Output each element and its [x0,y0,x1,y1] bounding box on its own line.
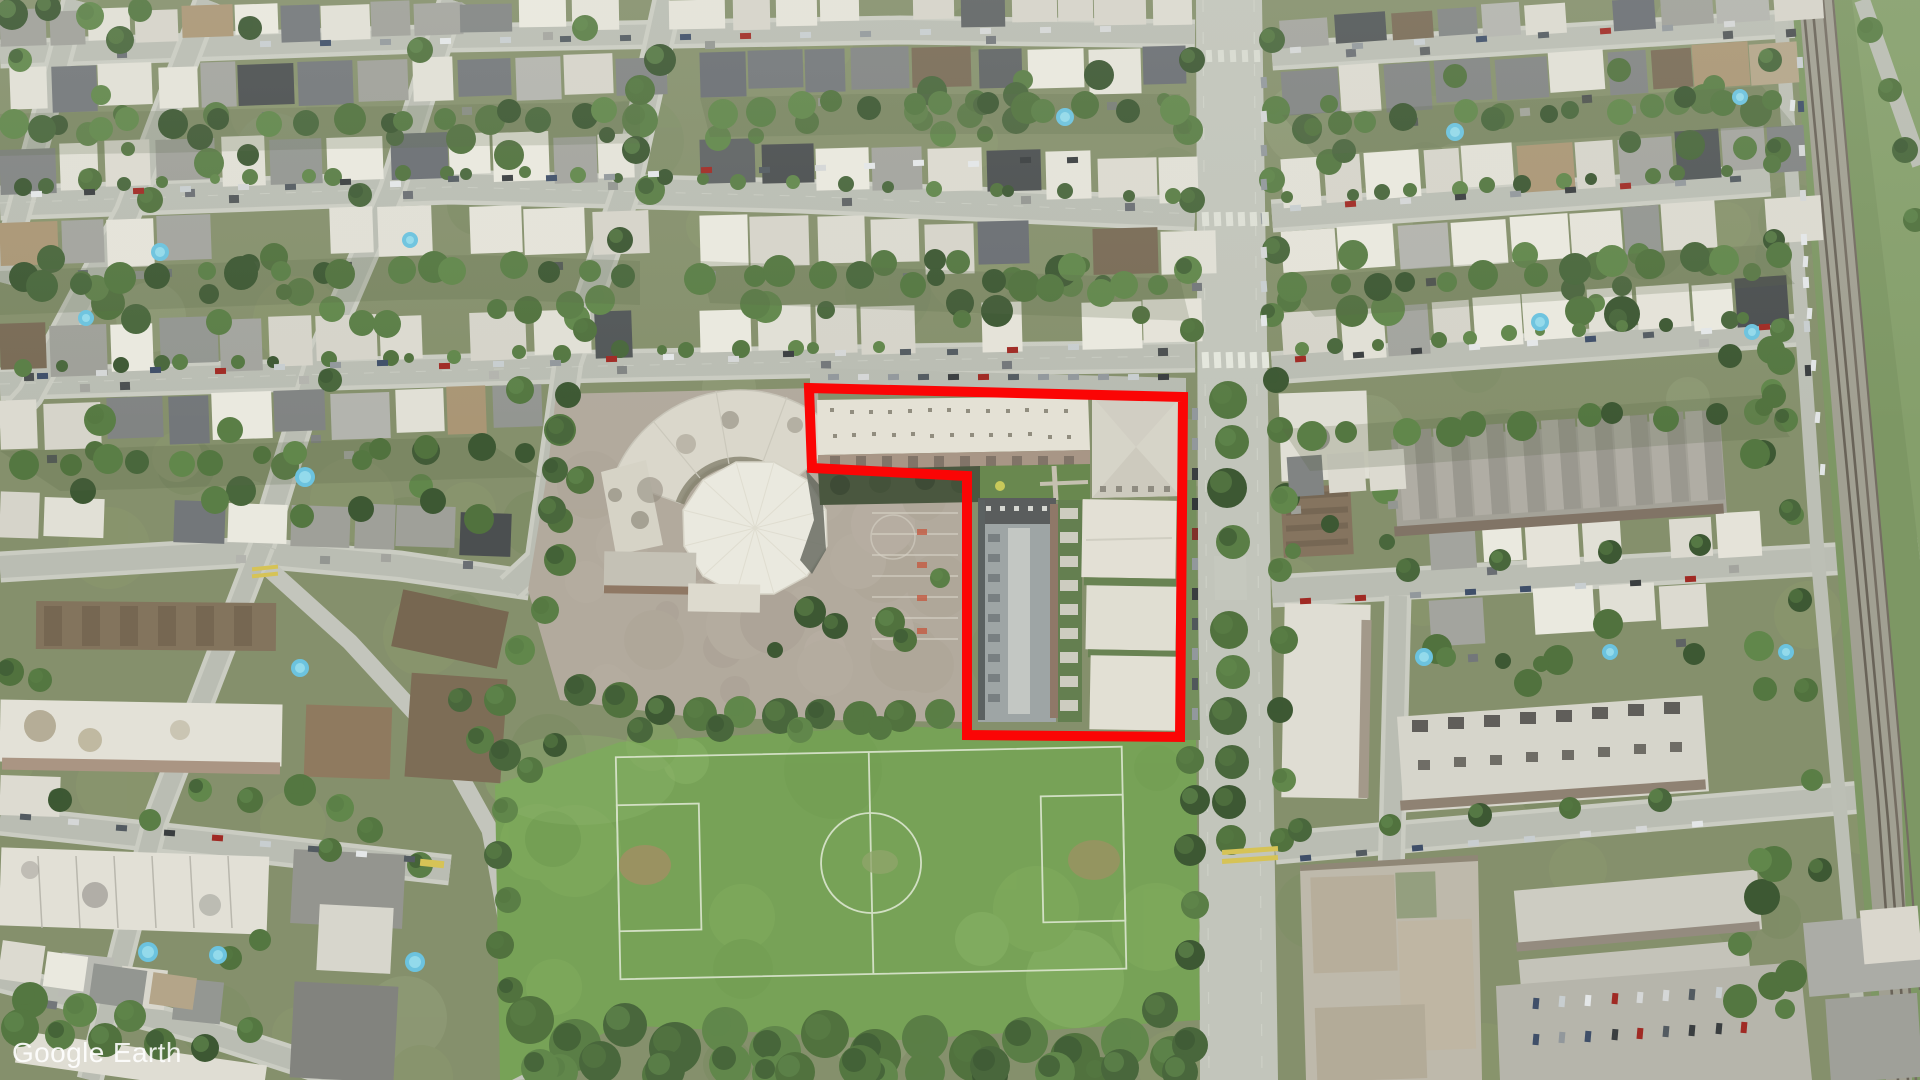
svg-text:Google Earth: Google Earth [12,1037,182,1068]
